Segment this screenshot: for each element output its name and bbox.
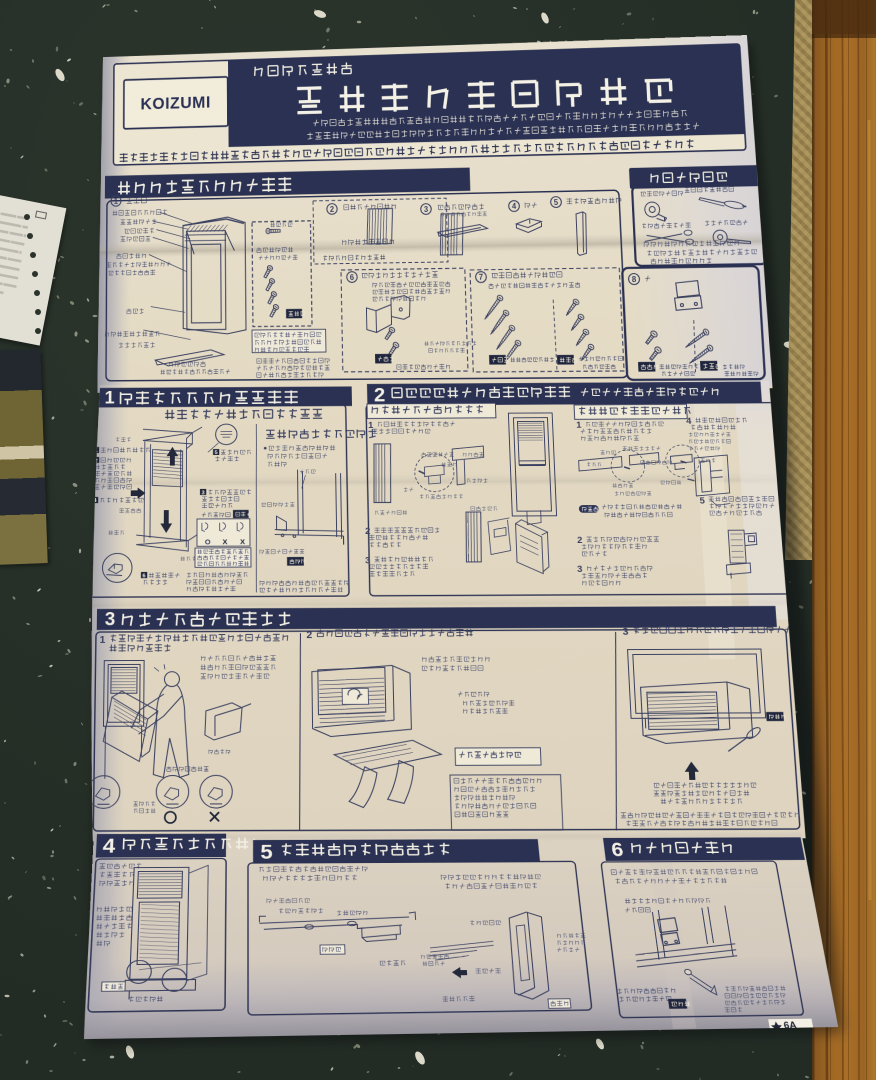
svg-text:2: 2 [577, 535, 583, 545]
svg-text:3: 3 [424, 205, 428, 214]
svg-text:7: 7 [479, 273, 484, 282]
svg-text:1: 1 [576, 420, 582, 430]
svg-text:5: 5 [554, 198, 559, 207]
svg-text:5: 5 [260, 842, 272, 864]
svg-text:1: 1 [368, 420, 373, 430]
svg-text:6A: 6A [783, 1019, 798, 1031]
svg-text:1: 1 [114, 197, 118, 206]
svg-text:3: 3 [365, 555, 371, 566]
svg-text:8: 8 [632, 275, 637, 284]
svg-text:5: 5 [699, 495, 705, 505]
svg-text:1: 1 [104, 387, 115, 407]
svg-text:X: X [223, 539, 228, 546]
svg-text:5: 5 [215, 450, 218, 456]
svg-text:2: 2 [306, 630, 312, 642]
svg-text:O: O [205, 539, 211, 546]
svg-text:6: 6 [350, 273, 354, 282]
svg-text:4: 4 [686, 416, 692, 426]
svg-text:3: 3 [105, 608, 116, 629]
svg-text:4: 4 [512, 202, 517, 211]
svg-text:3: 3 [577, 564, 583, 575]
svg-text:6: 6 [142, 573, 145, 579]
svg-text:2: 2 [330, 205, 334, 214]
svg-text:X: X [240, 539, 245, 546]
svg-text:2: 2 [374, 385, 386, 406]
svg-text:4: 4 [102, 836, 116, 859]
svg-text:KOIZUMI: KOIZUMI [141, 94, 211, 114]
svg-text:2: 2 [365, 526, 371, 536]
svg-text:3: 3 [202, 490, 205, 496]
svg-text:1: 1 [99, 634, 106, 646]
